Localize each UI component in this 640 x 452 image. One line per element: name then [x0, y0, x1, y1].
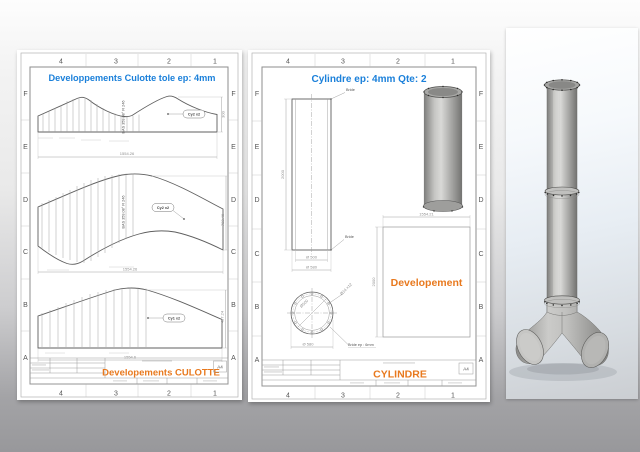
view-flange-circle: Ø500 Ø14 x12 Ø 580 Bride ep : 6mm: [287, 281, 376, 349]
zone-label: C: [254, 251, 259, 258]
zone-label: A: [255, 357, 260, 364]
view-development-top: BAS 359.08° R 246 Cy2 x2 1554.26 300: [38, 96, 226, 159]
balloon-cy2-middle[interactable]: Cy2 x2: [152, 204, 185, 220]
label-bride-top: Bride: [346, 88, 355, 92]
zone-label: C: [23, 249, 28, 256]
zone-label: 4: [59, 391, 63, 398]
drawing-number: Developements CULOTTE: [102, 368, 220, 379]
dim-development-height: 2000: [371, 277, 376, 287]
dim-cylinder-height: 2000: [280, 169, 285, 179]
zone-label: 4: [59, 59, 63, 66]
zone-label: 2: [396, 393, 400, 400]
title-block-culotte: Developements CULOTTE A4: [30, 358, 228, 384]
cylinder-3d-thumbnail: [423, 86, 463, 212]
zone-label: 1: [213, 59, 217, 66]
balloon-cy1-bottom[interactable]: Cy1 x2: [147, 314, 185, 322]
zone-label: 3: [114, 59, 118, 66]
zone-label: A: [23, 355, 28, 362]
view-development-bottom: Cy1 x2 1554.6 487.24: [38, 288, 228, 363]
dim-flange-outer-dia: Ø 580: [303, 341, 315, 346]
title-block-cylindre: CYLINDRE A4: [262, 360, 476, 386]
drawing-number: CYLINDRE: [373, 369, 427, 381]
zone-label: 1: [451, 393, 455, 400]
sheet-cylindre-title: Cylindre ep: 4mm Qte: 2: [311, 74, 426, 85]
zone-label: C: [231, 249, 236, 256]
zone-label: E: [255, 144, 260, 151]
view-development-rect: Developement 1554.21 2000: [371, 211, 470, 337]
zone-label: A: [231, 355, 236, 362]
dim-flange-inner-dia: Ø500: [299, 298, 310, 309]
view-cylinder-front: 2000 Bride Bride Ø 500 Ø 580: [280, 88, 355, 272]
dim-development-width: 1554.21: [419, 211, 434, 216]
zone-label: 4: [286, 393, 290, 400]
zone-label: B: [479, 304, 484, 311]
dim-inner-dia: Ø 500: [306, 254, 318, 259]
label-bride-bottom: Bride: [345, 235, 354, 239]
dim-height-bottom: 487.24: [219, 310, 224, 323]
zone-label: F: [23, 91, 27, 98]
zone-label: D: [254, 197, 259, 204]
zone-label: E: [23, 144, 28, 151]
zone-label: E: [479, 144, 484, 151]
sheet-culotte[interactable]: F E D C B A F E D C B A 4 3 2 1 4 3 2 1 …: [17, 50, 242, 400]
dim-width-bottom: 1554.6: [124, 354, 137, 359]
zone-label: B: [231, 302, 236, 309]
zone-label: 2: [167, 59, 171, 66]
zone-label: F: [479, 91, 483, 98]
balloon-label: Cy2 x2: [157, 206, 169, 210]
development-label: Developement: [391, 277, 463, 289]
dim-outer-dia: Ø 580: [306, 264, 318, 269]
zone-label: 2: [167, 391, 171, 398]
bend-note-top: BAS 359.08° R 246: [122, 101, 126, 134]
zone-label: 3: [341, 393, 345, 400]
zone-label: B: [255, 304, 260, 311]
zone-label: B: [23, 302, 28, 309]
zone-label: E: [231, 144, 236, 151]
sheet-culotte-frame: [21, 53, 238, 397]
note-bride-thickness: Bride ep : 6mm: [348, 343, 374, 347]
cad-workspace-background: F E D C B A F E D C B A 4 3 2 1 4 3 2 1 …: [0, 0, 640, 452]
zone-label: D: [231, 197, 236, 204]
sheet-culotte-title: Developpements Culotte tole ep: 4mm: [49, 73, 216, 83]
zone-label: 1: [213, 391, 217, 398]
dim-width-middle: 1554.26: [123, 266, 138, 271]
paper-format: A4: [463, 367, 469, 372]
zone-label: 3: [341, 59, 345, 66]
zone-label: D: [478, 197, 483, 204]
zone-label: F: [231, 91, 235, 98]
zone-label: 2: [396, 59, 400, 66]
dim-height-middle: 782.46: [220, 213, 225, 226]
zone-label: A: [479, 357, 484, 364]
dim-flange-holes: Ø14 x12: [339, 281, 354, 296]
bend-note-middle: BAS 359.08° R 246: [122, 196, 126, 229]
zone-label: C: [478, 251, 483, 258]
zone-label: 3: [114, 391, 118, 398]
dim-height-top: 300: [221, 110, 226, 117]
culotte-3d-model: [506, 28, 638, 399]
view-development-middle: BAS 359.08° R 246 Cy2 x2 1554.26 782.46: [38, 174, 229, 275]
balloon-cy2-top[interactable]: Cy2 x2: [167, 110, 205, 118]
model-wye-branch: [511, 300, 614, 372]
model-3d-viewport[interactable]: [506, 28, 638, 399]
sheet-cylindre[interactable]: F E D C B A F E D C B A 4 3 2 1 4 3 2 1 …: [248, 50, 490, 402]
balloon-label: Cy2 x2: [188, 112, 200, 116]
paper-format: A4: [217, 365, 223, 370]
zone-label: F: [255, 91, 259, 98]
zone-label: D: [23, 197, 28, 204]
zone-label: 1: [451, 59, 455, 66]
zone-label: 4: [286, 59, 290, 66]
balloon-label: Cy1 x2: [168, 316, 180, 320]
dim-width-top: 1554.26: [120, 151, 135, 156]
